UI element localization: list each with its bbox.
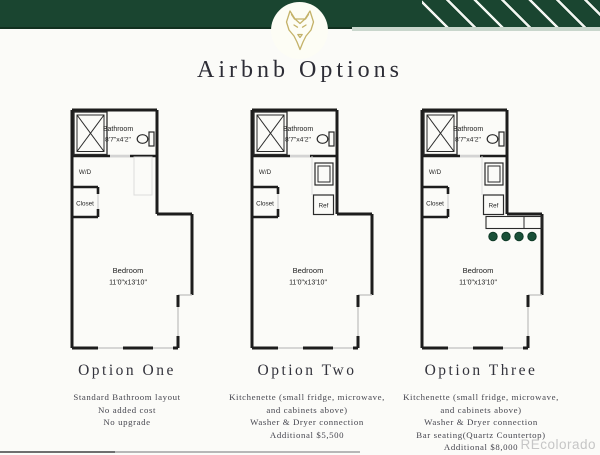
bedroom-dims-label: 11'0"x13'10"	[109, 280, 147, 287]
fridge-label: Ref	[319, 203, 329, 210]
bar-stool-icon	[489, 232, 497, 240]
door-opening	[460, 155, 480, 158]
header-accent-strip	[352, 27, 600, 31]
bar-counter	[486, 217, 542, 229]
toilet-icon	[149, 132, 154, 146]
page-title: Airbnb Options	[0, 57, 600, 84]
logo-badge	[271, 2, 328, 59]
floor-plan-drawing: Bathroom8'7"x4'2"W/DClosetBedroom11'0"x1…	[68, 106, 196, 352]
bottom-edge-line-light	[115, 451, 360, 453]
description-line: Kitchenette (small fridge, microwave,	[371, 391, 591, 404]
floor-plan-option-three: Bathroom8'7"x4'2"W/DClosetBedroom11'0"x1…	[418, 106, 546, 357]
bathroom-dims-label: 8'7"x4'2"	[455, 137, 482, 144]
page: Airbnb Options Bathroom8'7"x4'2"W/DClose…	[0, 0, 600, 455]
header-diagonal-stripes	[422, 0, 600, 28]
door-opening	[290, 155, 310, 158]
microwave-icon	[488, 166, 500, 182]
description-line: Washer & Dryer connection	[371, 416, 591, 429]
bathroom-label: Bathroom	[103, 126, 134, 133]
closet-label: Closet	[426, 201, 444, 208]
floor-plan-drawing: Bathroom8'7"x4'2"W/DClosetBedroom11'0"x1…	[418, 106, 546, 352]
toilet-icon	[137, 135, 148, 144]
bedroom-dims-label: 11'0"x13'10"	[459, 280, 497, 287]
bathroom-label: Bathroom	[453, 126, 484, 133]
toilet-icon	[329, 132, 334, 146]
bedroom-dims-label: 11'0"x13'10"	[289, 280, 327, 287]
floor-plan-drawing: Bathroom8'7"x4'2"W/DClosetBedroom11'0"x1…	[248, 106, 376, 352]
wolf-icon	[280, 8, 320, 54]
closet-label: Closet	[256, 201, 274, 208]
bathroom-dims-label: 8'7"x4'2"	[285, 137, 312, 144]
washer-dryer-label: W/D	[429, 169, 442, 176]
toilet-icon	[487, 135, 498, 144]
bedroom-label: Bedroom	[293, 266, 324, 275]
bathroom-label: Bathroom	[283, 126, 314, 133]
bottom-edge-line-dark	[0, 451, 115, 453]
toilet-icon	[317, 135, 328, 144]
floor-plan-option-one: Bathroom8'7"x4'2"W/DClosetBedroom11'0"x1…	[68, 106, 196, 357]
bar-stool-icon	[528, 232, 536, 240]
washer-dryer-label: W/D	[79, 169, 92, 176]
fridge-label: Ref	[489, 203, 499, 210]
floor-plan-option-two: Bathroom8'7"x4'2"W/DClosetBedroom11'0"x1…	[248, 106, 376, 357]
bar-stool-icon	[515, 232, 523, 240]
description-line: and cabinets above)	[371, 404, 591, 417]
door-swing	[134, 157, 152, 195]
plan-title-option-three: Option Three	[371, 362, 591, 380]
closet-label: Closet	[76, 201, 94, 208]
door-opening	[110, 155, 130, 158]
microwave-icon	[318, 166, 330, 182]
washer-dryer-label: W/D	[259, 169, 272, 176]
bar-stool-icon	[502, 232, 510, 240]
bedroom-label: Bedroom	[113, 266, 144, 275]
watermark: REcolorado	[520, 437, 596, 452]
bedroom-label: Bedroom	[463, 266, 494, 275]
bathroom-dims-label: 8'7"x4'2"	[105, 137, 132, 144]
toilet-icon	[499, 132, 504, 146]
